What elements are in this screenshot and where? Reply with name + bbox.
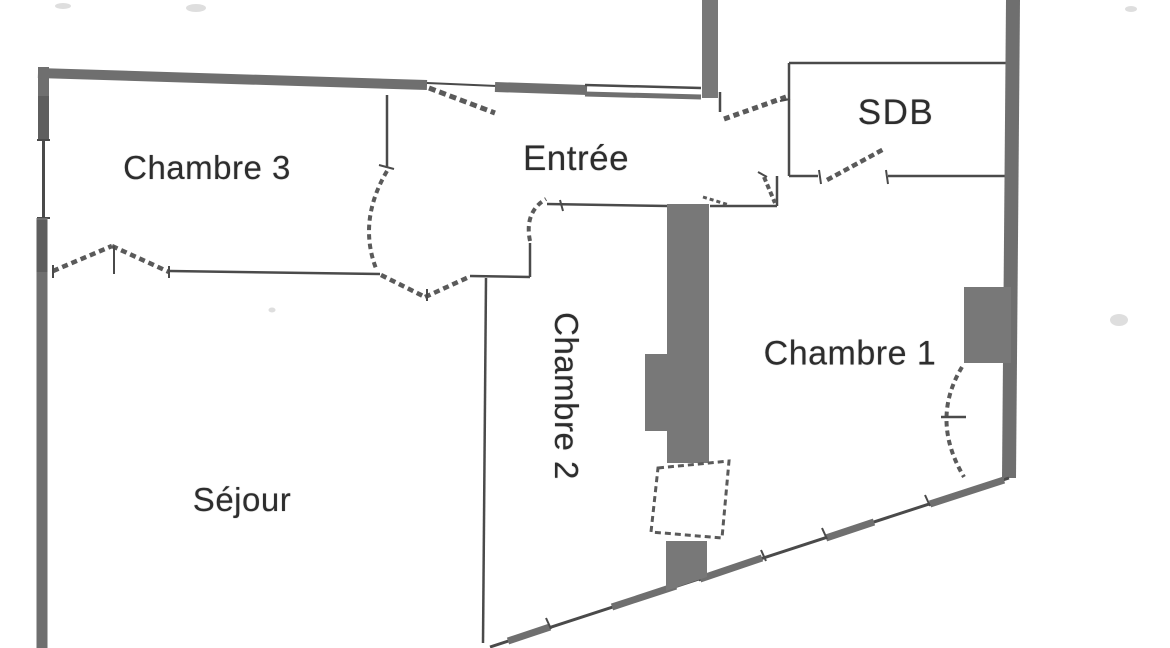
floor-plan-page: Chambre 3 Entrée SDB Chambre 2 Chambre 1… — [0, 0, 1170, 648]
wall-chambre2-top — [530, 200, 668, 277]
double-door-sejour-chambre3 — [53, 246, 169, 278]
room-label-chambre1: Chambre 1 — [764, 335, 937, 374]
sdb-door-leaf — [827, 149, 884, 180]
duct-top-pillar — [702, 0, 720, 112]
room-label-chambre3: Chambre 3 — [123, 149, 291, 187]
door-leaf-top-wall — [429, 88, 495, 113]
room-label-chambre2: Chambre 2 — [547, 312, 585, 480]
window-top-entree — [585, 85, 701, 97]
room-label-sdb: SDB — [858, 93, 934, 133]
partition-sejour-chambre2 — [483, 278, 486, 643]
balcony-door-parallelogram — [651, 461, 729, 538]
floor-plan-drawing — [0, 0, 1170, 648]
entry-door-leaf — [724, 97, 786, 119]
outer-wall-right — [1009, 0, 1013, 478]
room-label-sejour: Séjour — [193, 481, 291, 519]
room-label-entree: Entrée — [523, 139, 629, 179]
diagonal-facade-wall — [490, 478, 1009, 647]
outer-wall-left — [37, 67, 50, 648]
wall-entree-chambre1 — [703, 172, 777, 206]
outer-wall-top — [38, 73, 701, 97]
door-arc-chambre2 — [529, 199, 546, 241]
closet-block-chambre1 — [964, 287, 1011, 363]
partition-chambre3-entree — [379, 95, 394, 169]
door-arc-chambre3 — [369, 171, 387, 271]
door-arc-chambre1 — [941, 367, 966, 477]
wall-chambre3-bottom — [170, 271, 530, 277]
double-door-sejour-entree — [381, 275, 469, 301]
